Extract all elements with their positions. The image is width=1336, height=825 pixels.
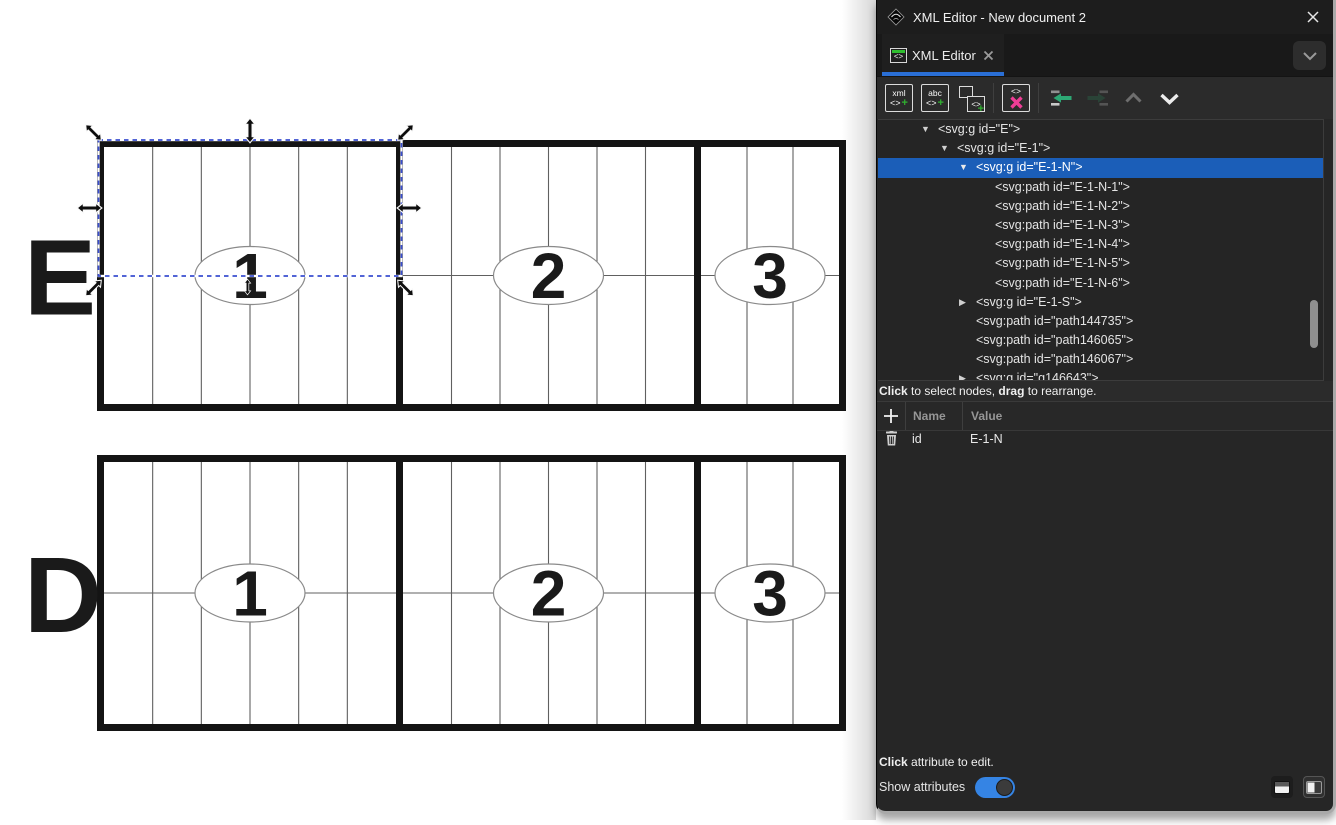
toolbar-separator: [1038, 83, 1039, 113]
plus-glyph: +: [978, 105, 984, 114]
tree-scrollbar-thumb[interactable]: [1310, 300, 1318, 348]
expander-expanded-icon[interactable]: ▼: [940, 139, 957, 158]
show-attributes-label: Show attributes: [879, 780, 965, 794]
attribute-row[interactable]: idE-1-N: [877, 431, 1333, 446]
trash-icon: [885, 431, 898, 446]
tree-row[interactable]: <svg:path id="path146067">: [878, 350, 1323, 369]
add-attribute-button[interactable]: [877, 402, 906, 430]
section-number-label: 2: [531, 240, 567, 312]
tree-row[interactable]: ▼<svg:g id="E-1">: [878, 139, 1323, 158]
tree-node-label: <svg:path id="E-1-N-5">: [995, 254, 1130, 273]
attribute-name[interactable]: id: [905, 431, 962, 446]
tree-status-hint: Click to select nodes, drag to rearrange…: [877, 381, 1333, 402]
section-number-label: 3: [752, 558, 788, 630]
attribute-value[interactable]: E-1-N: [962, 431, 1333, 446]
tabbar: <> XML Editor: [877, 34, 1333, 77]
tree-node-label: <svg:path id="path144735">: [976, 312, 1133, 331]
tree-row[interactable]: <svg:path id="E-1-N-3">: [878, 216, 1323, 235]
attribute-table-header: Name Value: [877, 402, 1333, 431]
duplicate-node-button[interactable]: <> +: [957, 84, 985, 112]
tree-rows: ▼<svg:g id="E">▼<svg:g id="E-1">▼<svg:g …: [878, 120, 1323, 381]
unindent-node-button[interactable]: [1047, 84, 1075, 112]
hint-bold: Click: [879, 384, 908, 398]
tab-close-icon[interactable]: [983, 50, 994, 61]
plus-glyph: +: [938, 99, 944, 108]
angle-brackets-glyph: <>: [926, 98, 937, 108]
expander-expanded-icon[interactable]: ▼: [921, 120, 938, 139]
angle-brackets-glyph: <>: [1011, 87, 1021, 96]
tree-row[interactable]: ▼<svg:g id="E-1-N">: [878, 158, 1323, 177]
new-text-node-button[interactable]: abc <> +: [921, 84, 949, 112]
tree-node-label: <svg:g id="E">: [938, 120, 1020, 139]
tree-row[interactable]: ▶<svg:g id="g146643">: [878, 369, 1323, 381]
attribute-table-empty-area: [877, 446, 1333, 747]
tree-row[interactable]: <svg:path id="E-1-N-6">: [878, 274, 1323, 293]
tree-row[interactable]: ▼<svg:g id="E">: [878, 120, 1323, 139]
expander-collapsed-icon[interactable]: ▶: [959, 293, 976, 312]
drawing-svg[interactable]: 123E123D: [0, 0, 876, 820]
move-node-down-button[interactable]: [1155, 84, 1183, 112]
vertical-split-icon: [1306, 781, 1322, 794]
tab-xml-editor[interactable]: <> XML Editor: [882, 34, 1004, 76]
window-title: XML Editor - New document 2: [913, 10, 1086, 25]
tree-node-label: <svg:path id="path146067">: [976, 350, 1133, 369]
tree-node-label: <svg:g id="g146643">: [976, 369, 1099, 381]
xml-node-tree[interactable]: ▼<svg:g id="E">▼<svg:g id="E-1">▼<svg:g …: [878, 119, 1324, 381]
toolbar-separator: [993, 83, 994, 113]
unindent-node-icon: [1050, 89, 1073, 107]
attribute-name-column-header: Name: [906, 402, 963, 430]
tree-row[interactable]: <svg:path id="E-1-N-1">: [878, 178, 1323, 197]
row-letter-label: E: [24, 217, 96, 338]
indent-node-button[interactable]: [1083, 84, 1111, 112]
chevron-down-icon: [1302, 51, 1318, 61]
delete-node-button[interactable]: <>: [1002, 84, 1030, 112]
plus-icon: [883, 408, 899, 424]
tree-node-label: <svg:path id="E-1-N-4">: [995, 235, 1130, 254]
angle-brackets-glyph: <>: [890, 98, 901, 108]
tree-row[interactable]: <svg:path id="E-1-N-4">: [878, 235, 1323, 254]
tree-node-label: <svg:path id="path146065">: [976, 331, 1133, 350]
tab-overflow-button[interactable]: [1293, 41, 1326, 70]
row-D-group[interactable]: 123D: [24, 459, 843, 728]
show-attributes-toggle[interactable]: [975, 777, 1015, 798]
selection-handle-top-left[interactable]: [83, 122, 105, 144]
tree-row[interactable]: <svg:path id="E-1-N-5">: [878, 254, 1323, 273]
horizontal-split-icon: [1274, 781, 1290, 794]
layout-vertical-button[interactable]: [1303, 776, 1325, 798]
tree-node-label: <svg:g id="E-1">: [957, 139, 1050, 158]
move-node-up-button[interactable]: [1119, 84, 1147, 112]
xml-toolbar: xml <> + abc <> + <> + <>: [877, 77, 1333, 119]
attribute-edit-hint: Click attribute to edit.: [877, 747, 1333, 769]
toggle-knob: [996, 779, 1013, 796]
bottom-controls: Show attributes: [877, 769, 1333, 811]
window-close-icon[interactable]: [1305, 9, 1321, 25]
tree-node-label: <svg:g id="E-1-N">: [976, 158, 1083, 177]
canvas-area[interactable]: 123E123D: [0, 0, 876, 820]
expander-expanded-icon[interactable]: ▼: [959, 158, 976, 177]
tree-node-label: <svg:path id="E-1-N-2">: [995, 197, 1130, 216]
tree-row[interactable]: ▶<svg:g id="E-1-S">: [878, 293, 1323, 312]
selection-handle-right-middle[interactable]: [397, 203, 422, 213]
selection-handle-left-middle[interactable]: [77, 203, 102, 213]
tree-row[interactable]: <svg:path id="E-1-N-2">: [878, 197, 1323, 216]
hint-bold: Click: [879, 755, 908, 769]
indent-node-icon: [1086, 89, 1109, 107]
tab-label: XML Editor: [912, 48, 976, 63]
xml-editor-tab-icon: <>: [890, 48, 907, 63]
xml-editor-window: XML Editor - New document 2 <> XML Edito…: [876, 0, 1336, 814]
attribute-value-column-header: Value: [963, 402, 1333, 430]
chevron-down-icon: [1159, 92, 1180, 105]
tree-node-label: <svg:path id="E-1-N-3">: [995, 216, 1130, 235]
inkscape-logo-icon: [887, 8, 905, 26]
tree-row[interactable]: <svg:path id="path144735">: [878, 312, 1323, 331]
delete-x-icon: [1009, 96, 1024, 109]
plus-glyph: +: [902, 99, 908, 108]
expander-collapsed-icon[interactable]: ▶: [959, 369, 976, 381]
attribute-rows: idE-1-N: [877, 431, 1333, 446]
titlebar[interactable]: XML Editor - New document 2: [877, 0, 1333, 34]
layout-horizontal-button[interactable]: [1271, 776, 1293, 798]
tree-node-label: <svg:path id="E-1-N-6">: [995, 274, 1130, 293]
delete-attribute-button[interactable]: [877, 431, 905, 446]
selection-handle-top-middle[interactable]: [245, 118, 255, 143]
section-number-label: 2: [531, 558, 567, 630]
row-letter-label: D: [24, 534, 102, 655]
inkscape-screen: 123E123D XML Editor - New document 2 <> …: [0, 0, 1336, 820]
section-number-label: 1: [232, 558, 268, 630]
chevron-up-icon: [1124, 92, 1143, 104]
hint-bold: drag: [998, 384, 1024, 398]
tree-row[interactable]: <svg:path id="path146065">: [878, 331, 1323, 350]
section-number-label: 3: [752, 240, 788, 312]
tree-node-label: <svg:g id="E-1-S">: [976, 293, 1082, 312]
tree-node-label: <svg:path id="E-1-N-1">: [995, 178, 1130, 197]
new-element-node-button[interactable]: xml <> +: [885, 84, 913, 112]
